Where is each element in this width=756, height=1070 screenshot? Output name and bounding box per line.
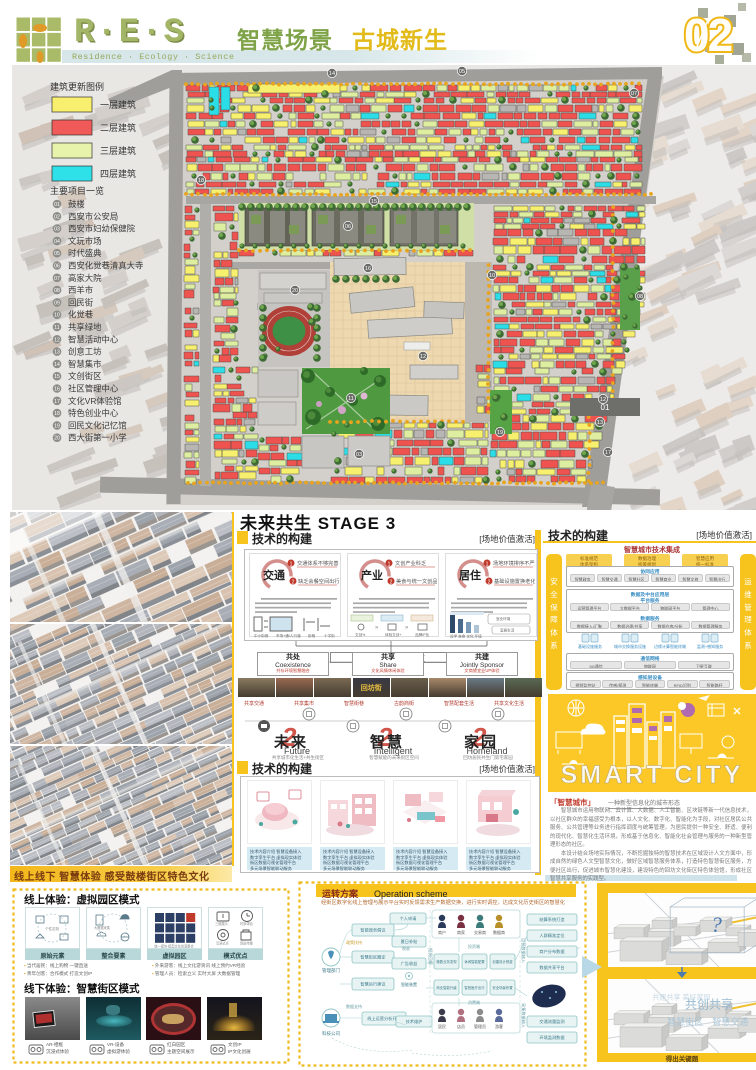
- svg-text:文玩市场: 文玩市场: [68, 236, 102, 246]
- svg-text:16: 16: [54, 387, 60, 393]
- svg-text:场地环境排序不严重: 场地环境排序不严重: [493, 559, 535, 567]
- svg-text:鼓楼: 鼓楼: [68, 199, 85, 209]
- svg-text:智慧集市: 智慧集市: [68, 359, 102, 369]
- svg-text:05: 05: [459, 69, 465, 75]
- svg-text:02: 02: [684, 9, 732, 61]
- svg-text:个人申请: 个人申请: [400, 915, 417, 922]
- svg-text:共建共享 美好家园: 共建共享 美好家园: [652, 993, 710, 1002]
- svg-text:16: 16: [365, 266, 371, 272]
- svg-text:微数业务变现: 微数业务变现: [436, 959, 457, 964]
- svg-text:大数据采集: 大数据采集: [94, 925, 111, 930]
- svg-text:17: 17: [605, 450, 611, 456]
- svg-text:文创产业科乏: 文创产业科乏: [395, 559, 427, 567]
- svg-text:智慧活动中心: 智慧活动中心: [68, 334, 119, 344]
- svg-text:美食与统一文创品牌产品一: 美食与统一文创品牌产品一: [396, 577, 437, 585]
- svg-text:03: 03: [54, 227, 60, 233]
- svg-text:07: 07: [631, 91, 637, 97]
- svg-text:运营数据输入: 运营数据输入: [520, 938, 527, 964]
- svg-text:居住: 居住: [459, 568, 481, 582]
- svg-text:西羊市: 西羊市: [68, 285, 93, 295]
- svg-text:06: 06: [345, 224, 351, 230]
- svg-text:02: 02: [54, 214, 60, 220]
- svg-text:人群精准定位: 人群精准定位: [539, 932, 564, 939]
- svg-text:07: 07: [54, 276, 60, 282]
- svg-text:数据支持: 数据支持: [346, 1003, 362, 1009]
- svg-text:商业智能升级: 商业智能升级: [436, 985, 457, 990]
- svg-text:15: 15: [54, 374, 60, 380]
- svg-text:交通体系不够完善: 交通体系不够完善: [297, 559, 339, 567]
- svg-text:»: »: [375, 625, 379, 631]
- svg-text:广告收益: 广告收益: [401, 960, 418, 967]
- svg-text:01: 01: [54, 202, 60, 208]
- svg-text:20: 20: [292, 288, 298, 294]
- svg-text:游客: 游客: [495, 1023, 503, 1029]
- svg-text:市场+通/人行道: 市场+通/人行道: [276, 633, 301, 638]
- svg-text:体验文创+: 体验文创+: [385, 632, 401, 637]
- svg-text:15: 15: [371, 199, 377, 205]
- svg-text:产业: 产业: [361, 568, 383, 582]
- svg-text:中小街巷: 中小街巷: [254, 633, 269, 638]
- svg-text:智能政务倡议: 智能政务倡议: [360, 927, 386, 934]
- svg-text:高家大院: 高家大院: [68, 273, 102, 283]
- svg-text:05: 05: [54, 251, 60, 257]
- svg-text:科技公司: 科技公司: [322, 1030, 340, 1037]
- svg-text:06: 06: [54, 264, 60, 270]
- svg-text:18: 18: [54, 411, 60, 417]
- svg-text:品牌IP化: 品牌IP化: [415, 632, 430, 637]
- svg-text:一层建筑: 一层建筑: [100, 99, 136, 110]
- svg-text:主要项目一览: 主要项目一览: [50, 185, 104, 196]
- svg-text:文创%: 文创%: [355, 632, 366, 637]
- svg-text:13: 13: [54, 350, 60, 356]
- svg-text:1: 1: [486, 562, 489, 568]
- svg-text:十字街: 十字街: [324, 633, 335, 638]
- svg-text:1: 1: [388, 562, 391, 568]
- svg-text:17: 17: [54, 399, 60, 405]
- svg-text:交通流量监测: 交通流量监测: [539, 1018, 564, 1025]
- svg-text:10: 10: [54, 313, 60, 319]
- svg-text:?: ?: [711, 912, 722, 937]
- svg-text:统一模块·模型文化资源整合: 统一模块·模型文化资源整合: [154, 944, 194, 949]
- svg-text:时代盛典: 时代盛典: [68, 248, 102, 258]
- svg-text:共享绿地: 共享绿地: [68, 322, 102, 332]
- svg-text:回民街: 回民街: [68, 297, 94, 307]
- svg-text:19: 19: [54, 423, 60, 429]
- svg-text:场景传播: 场景传播: [240, 941, 254, 946]
- svg-text:商户: 商户: [438, 929, 446, 935]
- svg-text:社区管理中心: 社区管理中心: [68, 384, 119, 394]
- svg-text:商家: 商家: [457, 929, 465, 935]
- svg-text:设学 准食 文化 环境: 设学 准食 文化 环境: [450, 634, 482, 639]
- svg-text:结算系统打造: 结算系统打造: [539, 916, 565, 923]
- svg-text:城市交换服务设施: 城市交换服务设施: [614, 643, 646, 649]
- svg-text:四层建筑: 四层建筑: [100, 168, 136, 179]
- svg-text:消费端: 消费端: [468, 999, 480, 1005]
- svg-text:SMART CITY: SMART CITY: [561, 761, 744, 789]
- svg-text:投资回报: 投资回报: [427, 948, 434, 966]
- svg-text:12: 12: [600, 397, 606, 403]
- svg-text:环境监测数据: 环境监测数据: [539, 1034, 564, 1041]
- svg-text:交通: 交通: [263, 568, 285, 582]
- svg-text:安全场景布置: 安全场景布置: [492, 985, 513, 990]
- svg-text:基础设施置换老化: 基础设施置换老化: [494, 577, 535, 585]
- svg-text:店员: 店员: [457, 1023, 465, 1029]
- svg-text:11: 11: [54, 325, 59, 331]
- svg-text:12: 12: [420, 354, 426, 360]
- svg-text:投资端: 投资端: [468, 943, 480, 949]
- svg-text:创建设计税费: 创建设计税费: [492, 959, 513, 964]
- svg-text:交易商: 交易商: [474, 929, 486, 935]
- svg-text:商户分布数据: 商户分布数据: [539, 948, 564, 955]
- svg-text:智慧运行建议: 智慧运行建议: [360, 981, 386, 988]
- svg-text:化觉巷: 化觉巷: [68, 310, 94, 320]
- svg-text:西安市公安局: 西安市公安局: [68, 211, 118, 221]
- svg-text:技术维护: 技术维护: [406, 1018, 423, 1025]
- svg-text:建筑更新图例: 建筑更新图例: [50, 81, 104, 92]
- svg-text:智慧街区 智慧交通: 智慧街区 智慧交通: [667, 1016, 748, 1027]
- svg-text:2: 2: [390, 580, 393, 586]
- svg-text:09: 09: [54, 300, 60, 306]
- svg-text:采集数据输入: 采集数据输入: [520, 1003, 527, 1029]
- svg-text:特色创业中心: 特色创业中心: [68, 408, 119, 418]
- svg-text:11: 11: [348, 396, 354, 402]
- svg-text:街巷: 街巷: [308, 633, 316, 638]
- svg-text:个性定制: 个性定制: [45, 926, 59, 931]
- svg-text:时序体验: 时序体验: [240, 921, 254, 926]
- svg-text:回民文化记忆馆: 回民文化记忆馆: [68, 420, 127, 430]
- svg-text:西安市妇幼保健院: 西安市妇幼保健院: [68, 224, 136, 234]
- svg-text:文创街区: 文创街区: [68, 371, 102, 381]
- svg-text:宜业环境: 宜业环境: [496, 616, 511, 621]
- svg-text:10: 10: [489, 273, 495, 279]
- svg-text:居民: 居民: [438, 1024, 446, 1029]
- svg-text:08: 08: [637, 294, 643, 300]
- svg-text:夏日补贴: 夏日补贴: [401, 938, 418, 945]
- svg-text:管理部门: 管理部门: [322, 967, 340, 974]
- svg-text:14: 14: [54, 362, 60, 368]
- svg-text:文化VR体验馆: 文化VR体验馆: [68, 396, 122, 406]
- svg-text:智慧医疗出行: 智慧医疗出行: [464, 985, 485, 990]
- svg-text:智能装置: 智能装置: [401, 981, 417, 987]
- svg-text:边缘计算智能终端: 边缘计算智能终端: [654, 643, 686, 649]
- svg-text:14: 14: [329, 71, 335, 77]
- svg-text:创意工坊: 创意工坊: [68, 347, 102, 357]
- svg-text:政策扶持: 政策扶持: [346, 939, 362, 945]
- svg-text:沉浸式点: 沉浸式点: [216, 941, 230, 946]
- svg-text:01: 01: [601, 403, 610, 412]
- svg-text:2: 2: [292, 580, 295, 586]
- svg-text:12: 12: [54, 337, 60, 343]
- svg-text:监测+感知服务: 监测+感知服务: [697, 643, 723, 649]
- svg-text:三维展示: 三维展示: [215, 921, 228, 926]
- svg-text:2: 2: [488, 580, 491, 586]
- svg-text:缺乏会餐空间出行体验: 缺乏会餐空间出行体验: [298, 577, 339, 585]
- svg-text:休闲智能配置: 休闲智能配置: [464, 959, 485, 964]
- svg-text:基础设施服务: 基础设施服务: [578, 643, 602, 649]
- svg-text:西安化觉巷清真大寺: 西安化觉巷清真大寺: [68, 261, 143, 271]
- svg-text:04: 04: [54, 239, 60, 245]
- svg-text:二层建筑: 二层建筑: [100, 122, 136, 133]
- svg-text:»: »: [405, 625, 409, 631]
- svg-text:数据共享平台: 数据共享平台: [539, 964, 564, 971]
- svg-text:智慧街区圈定: 智慧街区圈定: [360, 954, 385, 961]
- svg-text:08: 08: [54, 288, 60, 294]
- svg-text:19: 19: [497, 430, 503, 436]
- svg-text:宜居生活: 宜居生活: [500, 628, 515, 633]
- svg-text:三层建筑: 三层建筑: [100, 145, 136, 156]
- svg-text:13: 13: [597, 420, 603, 426]
- svg-text:1: 1: [290, 562, 293, 568]
- svg-text:20: 20: [54, 436, 60, 442]
- svg-text:03: 03: [356, 452, 362, 458]
- svg-text:18: 18: [198, 178, 204, 184]
- svg-text:西大街第一小学: 西大街第一小学: [68, 433, 127, 443]
- svg-text:税收: 税收: [402, 945, 410, 951]
- svg-text:数据商: 数据商: [493, 929, 505, 935]
- svg-text:管理员: 管理员: [474, 1023, 486, 1029]
